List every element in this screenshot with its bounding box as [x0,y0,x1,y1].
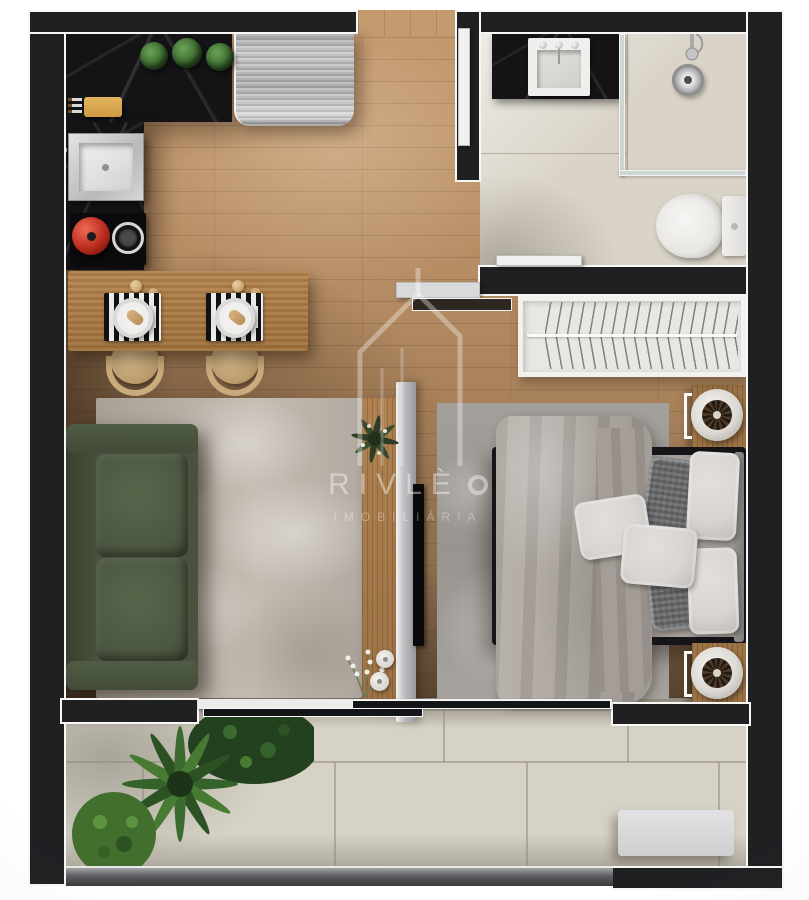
wall-top-right [478,10,784,34]
sofa-cushion [96,454,188,557]
bathroom-door [496,255,582,266]
sofa [66,424,198,690]
wall-balcony-right [611,702,751,726]
wall-balcony-left [60,698,199,724]
closet-hangers [545,302,738,334]
wall-right [746,10,784,890]
balcony-plants [62,704,314,872]
wall-bottom-right [611,866,784,890]
decor-vase [376,650,394,668]
knife [68,98,82,101]
toilet-tank [722,196,746,256]
cutlery [109,306,111,328]
bedroom-door [396,282,480,298]
drinking-glass [130,280,142,292]
refrigerator [234,30,354,126]
sofa-cushion [96,558,188,661]
bath-tile-line [627,34,628,172]
drinking-glass [232,280,244,292]
toilet [656,194,724,258]
balcony-railing [66,866,613,886]
sliding-door-panel [352,700,611,709]
throw-pillow [620,523,699,589]
wardrobe-closet [518,296,746,377]
faucet-handle [571,41,579,49]
herb-plant [140,42,168,70]
kitchen-sink [68,133,144,201]
entry-door [458,28,470,146]
decor-vase [370,672,389,691]
sauce-pot [72,217,110,255]
faucet-spout [555,41,563,49]
cutlery [256,306,258,328]
faucet-handle [539,41,547,49]
bathroom-sink [528,38,590,96]
table-lamp [691,389,743,441]
shower-glass [619,170,746,176]
tile-grout [334,762,336,866]
wall-left [28,10,66,886]
floor-plan: RIVLÈ IMOBILIÁRIA [0,0,809,900]
nightstand [692,385,746,447]
cutting-board [84,97,122,117]
herb-plant [172,38,202,68]
tv [413,484,424,646]
balcony-bench [618,810,734,856]
faucet-neck [558,48,560,64]
sink-drain [102,164,109,171]
decor-flowers [340,640,388,702]
gas-burner [112,222,144,254]
closet-rail [527,334,737,337]
herb-plant [206,43,234,71]
bath-tile-line [480,153,627,154]
knife [68,110,82,113]
console-plant [348,412,402,466]
chair-back [106,356,164,396]
shower-head [676,28,710,70]
pillow [686,451,741,541]
sliding-door-panel [203,708,423,717]
table-lamp [691,647,743,699]
wall-top-left [28,10,358,34]
cutlery [154,306,156,328]
shower-glass [619,34,625,176]
bedroom-door-panel [412,298,512,311]
wall-bathroom-bottom [478,265,748,296]
knife [68,104,82,107]
chair-back [206,356,264,396]
cutlery [211,306,213,328]
wall-bracket [684,651,692,697]
tile-grout [526,762,528,866]
sofa-armrest [66,661,198,690]
closet-hangers [545,337,738,369]
sofa-armrest [66,424,198,453]
wall-bracket [684,393,692,439]
nightstand [692,643,746,705]
sofa-backrest [66,424,96,690]
